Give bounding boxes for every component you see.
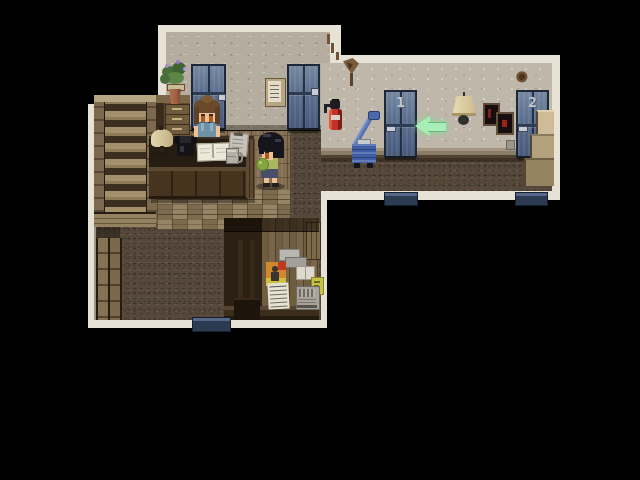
wall-outlet [506,140,515,150]
hair-side-right [215,107,220,124]
character-boy[interactable] [255,130,287,190]
door-number-2: 2 [516,95,549,109]
yellow-poster-mark [314,281,320,283]
frame-red-blob [502,120,507,127]
lobby-door-right[interactable] [287,64,320,130]
arm-left [194,126,198,137]
cart-bucket [352,144,376,163]
poster-wall [224,218,319,320]
stair-top-edge [94,95,156,102]
cup-handle [237,152,243,163]
wall-crack-segment [327,34,330,44]
cart-wheel-left [354,163,360,168]
shoe-left [263,183,270,187]
radiator-slats [299,289,315,297]
metal-cup [226,148,239,162]
hall-doormat-2[interactable] [515,192,548,206]
understair-post [108,238,122,320]
paper-list [267,282,289,309]
stair-step-bottom [524,158,554,186]
lobby-doormat[interactable] [192,317,231,332]
desk-lamp-shade [151,129,173,147]
cart-handle [368,111,380,120]
extinguisher-label [331,115,340,120]
blue-hand-cart[interactable] [352,144,376,166]
desk-lamp-base [155,152,168,156]
door-shadow [385,156,416,160]
desk-lamp-finial [159,126,163,130]
reception-desk-front [149,167,247,199]
poster-figure-body [271,272,279,281]
fire-extinguisher[interactable] [324,99,344,131]
beige-staircase-up[interactable] [524,110,552,184]
wall-crack-segment [331,43,334,53]
hair-shine [275,139,281,142]
arm-right [216,126,220,137]
stair-steps [104,95,146,225]
shoe-right [272,183,279,187]
door-number-1: 1 [384,95,417,109]
stair-bottom-board [94,212,156,227]
poster-wall-top-trim [224,218,319,232]
purple-flower [176,60,180,64]
stair-rail-left [94,95,105,225]
eye-left [201,114,205,122]
door-divider [303,66,305,128]
hair-shine [263,134,271,137]
wooden-staircase-up[interactable] [94,95,156,225]
blue-tank-top [197,123,217,137]
purple-flower [183,67,187,71]
eye-right [209,114,213,122]
green-apple [256,158,269,171]
dark-picture-frame-2 [496,112,514,135]
boy-shadow [256,183,285,190]
pot-body [168,89,182,104]
radiator-vent [296,286,320,310]
potted-plant [160,60,190,108]
wall-crack-tail [350,73,353,86]
purple-flower [165,64,169,68]
wall-crack-segment [336,52,339,60]
extinguisher-handle [330,100,340,109]
hair-side-left [194,107,199,124]
door-handle [311,88,319,96]
wall-post [238,240,243,302]
door-handle [386,126,396,132]
arrow-shaft [428,122,446,132]
wall-stain [516,71,529,84]
hall-door-1[interactable]: 1 [384,90,417,158]
game-screen: 1 2 [0,0,640,480]
certificate-paper [268,81,281,102]
character-receptionist[interactable] [193,95,221,140]
cart-wheel-right [367,163,373,168]
lamp-bulb [458,115,469,125]
extinguisher-hose-down [324,106,327,113]
poster-red-corner [278,262,286,270]
quest-arrow-left [415,116,447,136]
dark-crate [234,298,260,320]
boy-hair-fringe [259,142,264,154]
certificate-frame [265,78,286,107]
door-shadow [288,128,319,133]
wall-post [250,240,255,302]
boy-hair-side [273,142,284,158]
frame-red-streak [488,109,491,118]
hall-doormat-1[interactable] [384,192,418,206]
